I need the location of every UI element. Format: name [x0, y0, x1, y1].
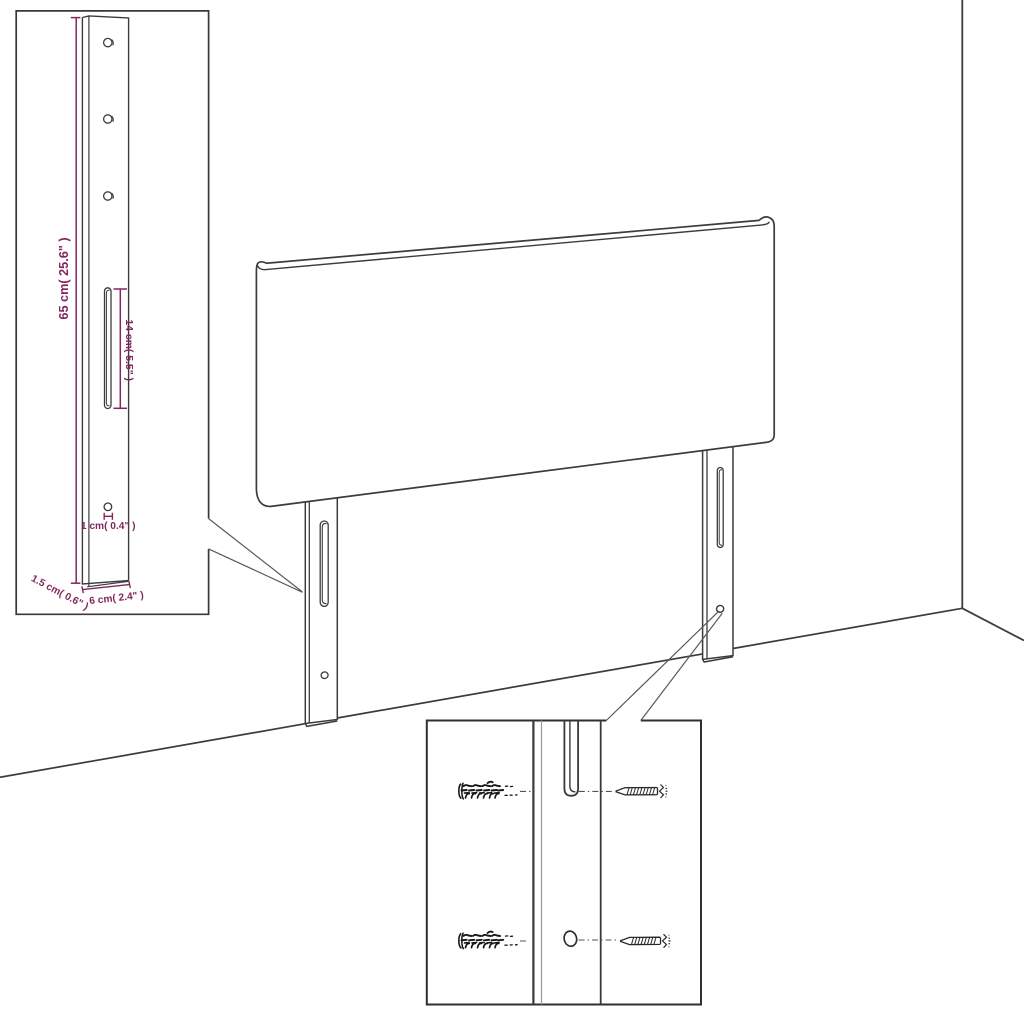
svg-text:14 cm( 5.5" ): 14 cm( 5.5" )	[123, 319, 134, 381]
svg-text:65 cm( 25.6" ): 65 cm( 25.6" )	[57, 237, 71, 319]
svg-text:1 cm( 0.4" ): 1 cm( 0.4" )	[81, 521, 136, 532]
